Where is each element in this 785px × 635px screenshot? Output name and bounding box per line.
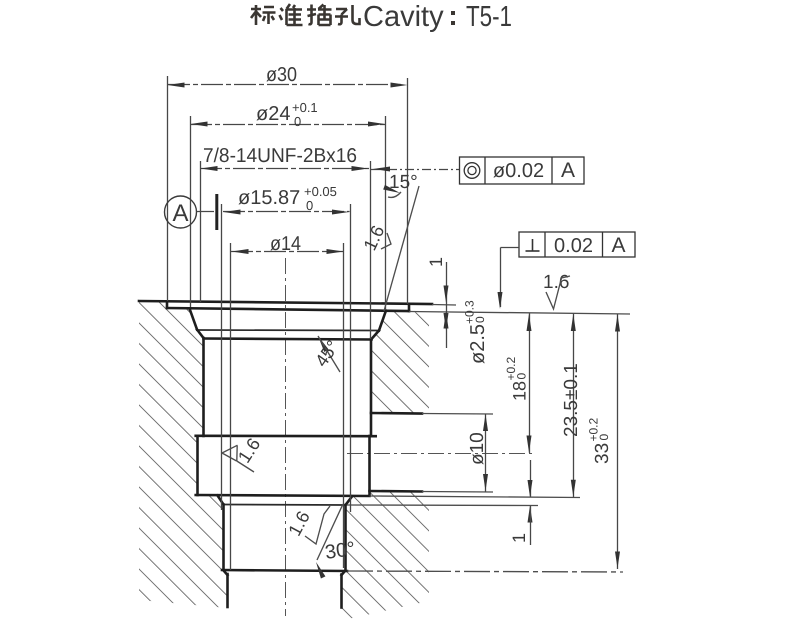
svg-text:33: 33 (592, 443, 613, 464)
svg-text:0.02: 0.02 (554, 235, 593, 257)
svg-text:+0.05: +0.05 (304, 184, 337, 199)
svg-text:7/8-14UNF-2Bx16: 7/8-14UNF-2Bx16 (203, 145, 357, 167)
svg-text:A: A (561, 159, 575, 182)
svg-text:ø14: ø14 (270, 233, 301, 255)
svg-text:0: 0 (597, 434, 611, 441)
svg-text:0: 0 (473, 316, 487, 323)
svg-text:0: 0 (306, 198, 313, 213)
svg-text:45°: 45° (311, 337, 343, 371)
svg-text:18: 18 (510, 381, 530, 401)
svg-text:30°: 30° (324, 538, 357, 564)
svg-text:1: 1 (426, 257, 446, 267)
svg-text:ø10: ø10 (467, 432, 488, 465)
svg-text:0: 0 (294, 114, 301, 129)
svg-text:ø15.87: ø15.87 (238, 187, 300, 209)
svg-text:Cavity: Cavity (363, 1, 444, 33)
svg-text:23.5±0.1: 23.5±0.1 (561, 363, 582, 437)
svg-text:A: A (172, 200, 188, 227)
svg-text:ø2.5: ø2.5 (467, 324, 489, 364)
svg-text:+0.1: +0.1 (292, 100, 318, 115)
svg-text:1.6: 1.6 (543, 272, 569, 293)
svg-text:0: 0 (515, 373, 529, 380)
svg-text:1.6: 1.6 (360, 222, 389, 253)
svg-text:1.6: 1.6 (284, 508, 313, 539)
svg-text:ø0.02: ø0.02 (493, 160, 544, 182)
svg-text:1: 1 (509, 533, 529, 543)
svg-text:A: A (611, 234, 625, 257)
svg-text:ø24: ø24 (256, 103, 290, 125)
svg-text:T5-1: T5-1 (466, 1, 512, 33)
svg-text:ø30: ø30 (266, 64, 297, 86)
